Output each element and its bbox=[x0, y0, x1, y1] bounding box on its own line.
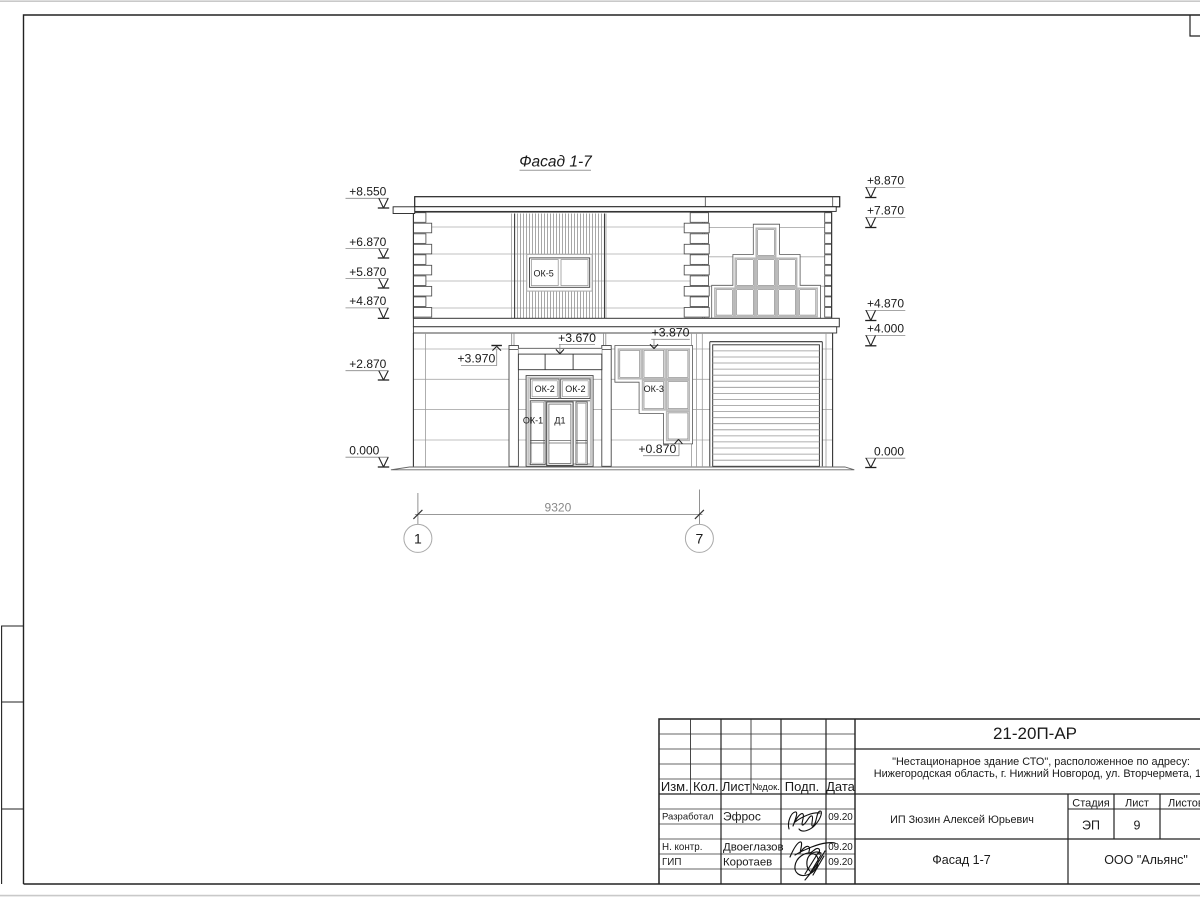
svg-text:09.20: 09.20 bbox=[828, 812, 853, 823]
svg-text:21-20П-АР: 21-20П-АР bbox=[993, 724, 1077, 743]
svg-text:+4.870: +4.870 bbox=[867, 297, 904, 311]
svg-text:Лист: Лист bbox=[722, 779, 750, 794]
svg-text:9: 9 bbox=[1134, 819, 1141, 833]
svg-text:09.20: 09.20 bbox=[828, 842, 853, 853]
svg-text:+4.870: +4.870 bbox=[349, 294, 386, 308]
svg-text:ОК-2: ОК-2 bbox=[565, 384, 585, 394]
svg-text:Листов: Листов bbox=[1168, 797, 1200, 809]
svg-text:+5.870: +5.870 bbox=[349, 265, 386, 279]
svg-text:ОК-1: ОК-1 bbox=[523, 415, 543, 425]
svg-text:Эфрос: Эфрос bbox=[723, 810, 761, 824]
svg-text:ГИП: ГИП bbox=[662, 857, 681, 868]
svg-text:№док.: №док. bbox=[752, 782, 780, 793]
svg-text:Нижегородская область, г. Нижн: Нижегородская область, г. Нижний Новгоро… bbox=[874, 768, 1200, 780]
svg-text:Коротаев: Коротаев bbox=[723, 857, 772, 869]
svg-text:09.20: 09.20 bbox=[828, 857, 853, 868]
svg-text:ИП Зюзин Алексей Юрьевич: ИП Зюзин Алексей Юрьевич bbox=[890, 814, 1034, 826]
svg-text:0.000: 0.000 bbox=[874, 444, 904, 458]
svg-text:Изм.: Изм. bbox=[661, 779, 689, 794]
svg-text:Разработал: Разработал bbox=[662, 812, 714, 823]
svg-text:+3.670: +3.670 bbox=[558, 331, 596, 345]
svg-text:Дата: Дата bbox=[826, 779, 856, 794]
svg-text:Н. контр.: Н. контр. bbox=[662, 842, 702, 853]
svg-text:0.000: 0.000 bbox=[349, 443, 379, 457]
svg-text:Двоеглазов: Двоеглазов bbox=[723, 842, 784, 854]
svg-text:+2.870: +2.870 bbox=[349, 357, 386, 371]
svg-text:+7.870: +7.870 bbox=[867, 204, 904, 218]
svg-text:+4.000: +4.000 bbox=[867, 322, 904, 336]
svg-text:Подп.: Подп. bbox=[785, 779, 820, 794]
svg-text:+6.870: +6.870 bbox=[349, 235, 386, 249]
svg-text:Лист: Лист bbox=[1125, 797, 1149, 809]
svg-text:+8.550: +8.550 bbox=[349, 185, 386, 199]
svg-text:1: 1 bbox=[414, 530, 422, 546]
svg-text:ЭП: ЭП bbox=[1082, 819, 1100, 833]
svg-text:+3.870: +3.870 bbox=[652, 326, 690, 340]
svg-text:9320: 9320 bbox=[545, 500, 572, 514]
svg-text:Кол.: Кол. bbox=[693, 779, 719, 794]
svg-text:Стадия: Стадия bbox=[1072, 797, 1110, 809]
svg-text:ООО "Альянс": ООО "Альянс" bbox=[1104, 853, 1188, 867]
svg-text:+0.870: +0.870 bbox=[638, 442, 676, 456]
svg-text:Д1: Д1 bbox=[554, 415, 565, 425]
svg-text:ОК-2: ОК-2 bbox=[535, 384, 555, 394]
svg-text:Фасад 1-7: Фасад 1-7 bbox=[932, 853, 991, 867]
svg-text:7: 7 bbox=[696, 530, 704, 546]
svg-text:+3.970: +3.970 bbox=[457, 352, 495, 366]
svg-text:ОК-5: ОК-5 bbox=[533, 268, 553, 278]
svg-text:+8.870: +8.870 bbox=[867, 174, 904, 188]
svg-text:Фасад 1-7: Фасад 1-7 bbox=[519, 154, 593, 171]
svg-text:"Нестационарное здание СТО", р: "Нестационарное здание СТО", расположенн… bbox=[892, 756, 1190, 768]
svg-text:ОК-3: ОК-3 bbox=[644, 384, 664, 394]
